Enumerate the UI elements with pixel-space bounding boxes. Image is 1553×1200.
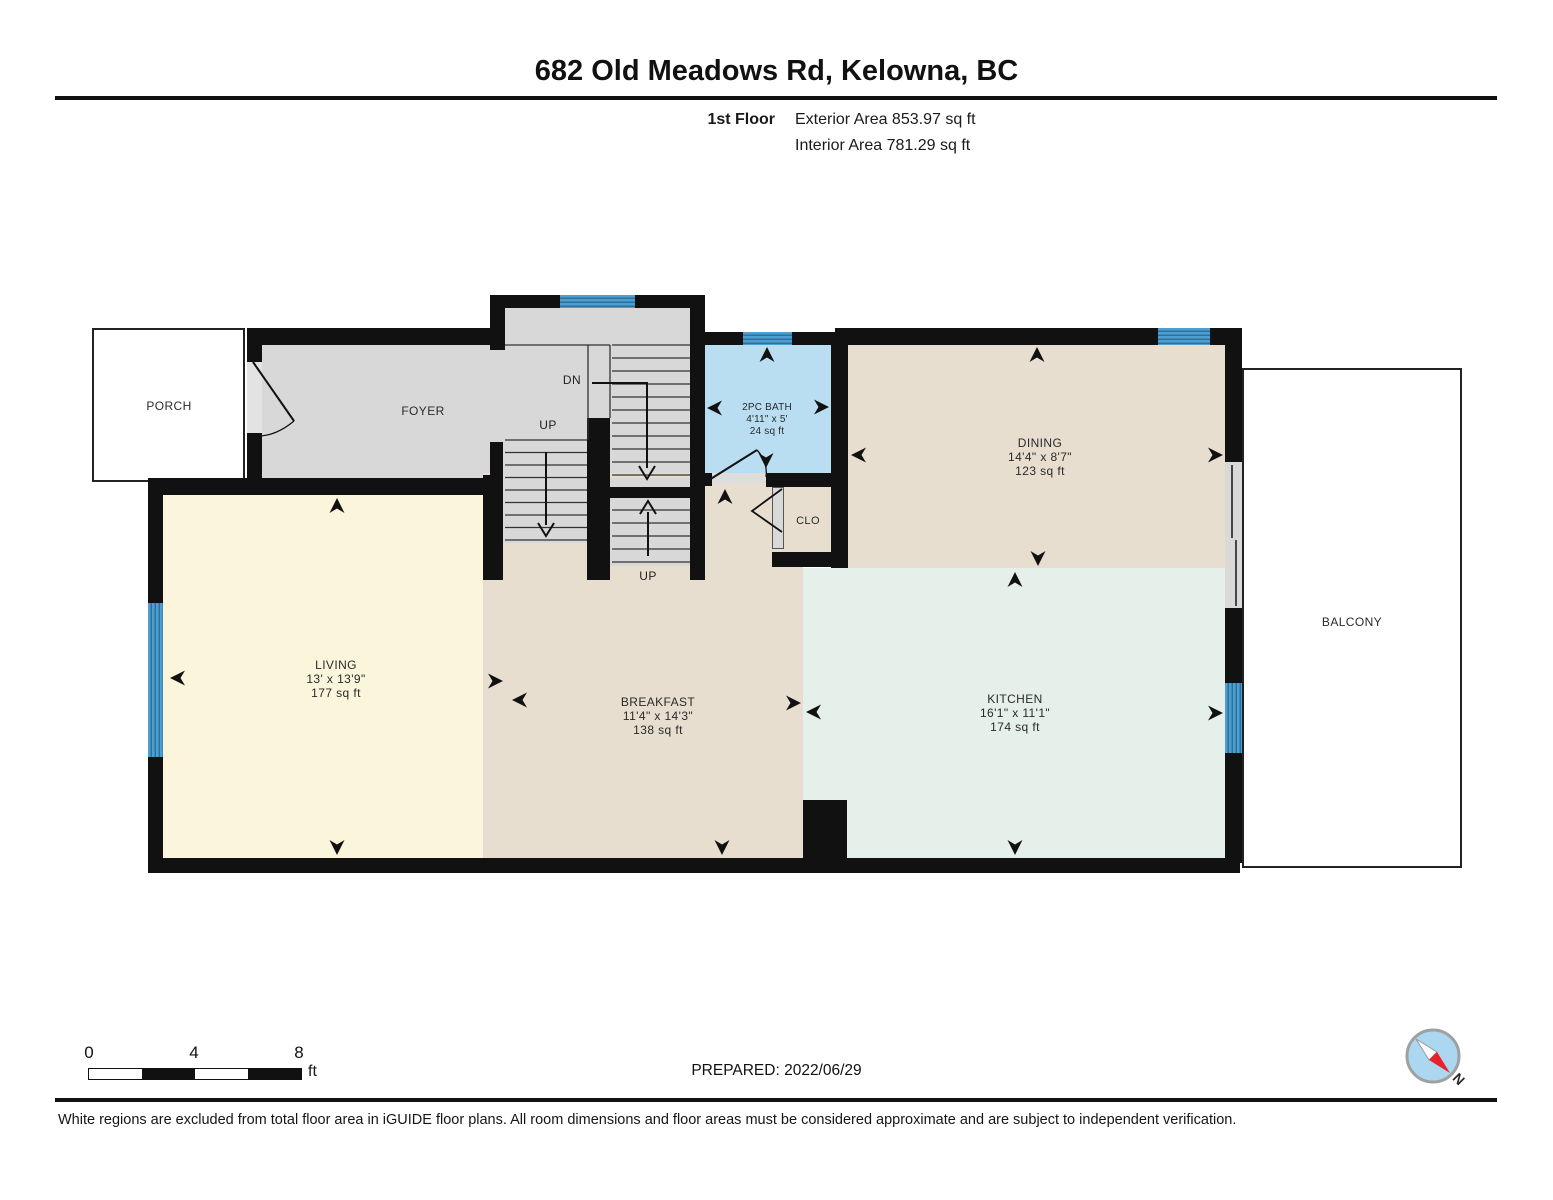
foyer-label: FOYER: [401, 404, 444, 418]
dining-area: 123 sq ft: [1008, 464, 1072, 478]
floor-label: 1st Floor: [0, 111, 775, 129]
interior-area: Interior Area 781.29 sq ft: [795, 137, 970, 155]
camera-arrow-icon: [330, 840, 345, 855]
scale-tick-8: 8: [294, 1043, 303, 1063]
balcony-label: BALCONY: [1322, 615, 1382, 629]
camera-arrow-icon: [715, 840, 730, 855]
plan-annotations: [0, 0, 1553, 1200]
camera-arrow-icon: [330, 498, 345, 513]
camera-arrow-icon: [170, 671, 185, 686]
camera-arrow-icon: [1008, 840, 1023, 855]
stair-steps: [505, 345, 690, 562]
camera-arrow-icon: [1030, 347, 1045, 362]
camera-arrow-icon: [1208, 706, 1223, 721]
kitchen-area: 174 sq ft: [980, 720, 1050, 734]
camera-arrow-icon: [1008, 572, 1023, 587]
stairs-up-lower-label: UP: [639, 569, 656, 583]
header-divider: [55, 96, 1497, 100]
sliding-door-lines: [1232, 465, 1236, 606]
living-label: LIVING 13' x 13'9" 177 sq ft: [306, 658, 365, 700]
closet-label: CLO: [796, 514, 820, 528]
bath-area: 24 sq ft: [742, 426, 792, 438]
prepared-date: PREPARED: 2022/06/29: [0, 1062, 1553, 1080]
kitchen-label: KITCHEN 16'1" x 11'1" 174 sq ft: [980, 692, 1050, 734]
camera-arrow-icon: [786, 696, 801, 711]
bath-label: 2PC BATH 4'11" x 5' 24 sq ft: [742, 402, 792, 438]
disclaimer-text: White regions are excluded from total fl…: [58, 1112, 1498, 1128]
living-area: 177 sq ft: [306, 686, 365, 700]
camera-arrow-icon: [512, 693, 527, 708]
camera-arrow-icon: [488, 674, 503, 689]
breakfast-label: BREAKFAST 11'4" x 14'3" 138 sq ft: [621, 695, 695, 737]
living-dimensions: 13' x 13'9": [306, 672, 365, 686]
breakfast-name: BREAKFAST: [621, 695, 695, 709]
dining-label: DINING 14'4" x 8'7" 123 sq ft: [1008, 436, 1072, 478]
camera-arrow-icon: [760, 347, 775, 362]
dining-name: DINING: [1008, 436, 1072, 450]
bath-dimensions: 4'11" x 5': [742, 414, 792, 426]
camera-arrows: [170, 347, 1223, 855]
camera-arrow-icon: [707, 401, 722, 416]
exterior-area: Exterior Area 853.97 sq ft: [795, 111, 976, 129]
stair-arrows: [538, 383, 656, 556]
page-title: 682 Old Meadows Rd, Kelowna, BC: [0, 55, 1553, 88]
living-name: LIVING: [306, 658, 365, 672]
stairs-down-label: DN: [563, 373, 581, 387]
bath-name: 2PC BATH: [742, 402, 792, 414]
camera-arrow-icon: [759, 453, 774, 468]
camera-arrow-icon: [718, 489, 733, 504]
dining-dimensions: 14'4" x 8'7": [1008, 450, 1072, 464]
footer-divider: [55, 1098, 1497, 1102]
kitchen-name: KITCHEN: [980, 692, 1050, 706]
scale-tick-4: 4: [189, 1043, 198, 1063]
closet-bifold-door: [752, 489, 782, 532]
stairs-up-label: UP: [539, 418, 556, 432]
porch-label: PORCH: [146, 399, 191, 413]
breakfast-area: 138 sq ft: [621, 723, 695, 737]
camera-arrow-icon: [1208, 448, 1223, 463]
scale-tick-0: 0: [84, 1043, 93, 1063]
breakfast-dimensions: 11'4" x 14'3": [621, 709, 695, 723]
camera-arrow-icon: [851, 448, 866, 463]
camera-arrow-icon: [814, 400, 829, 415]
camera-arrow-icon: [1031, 551, 1046, 566]
kitchen-dimensions: 16'1" x 11'1": [980, 706, 1050, 720]
bath-door: [709, 450, 766, 480]
floor-plan-sheet: 682 Old Meadows Rd, Kelowna, BC 1st Floo…: [0, 0, 1553, 1200]
front-door: [253, 362, 294, 436]
camera-arrow-icon: [806, 705, 821, 720]
